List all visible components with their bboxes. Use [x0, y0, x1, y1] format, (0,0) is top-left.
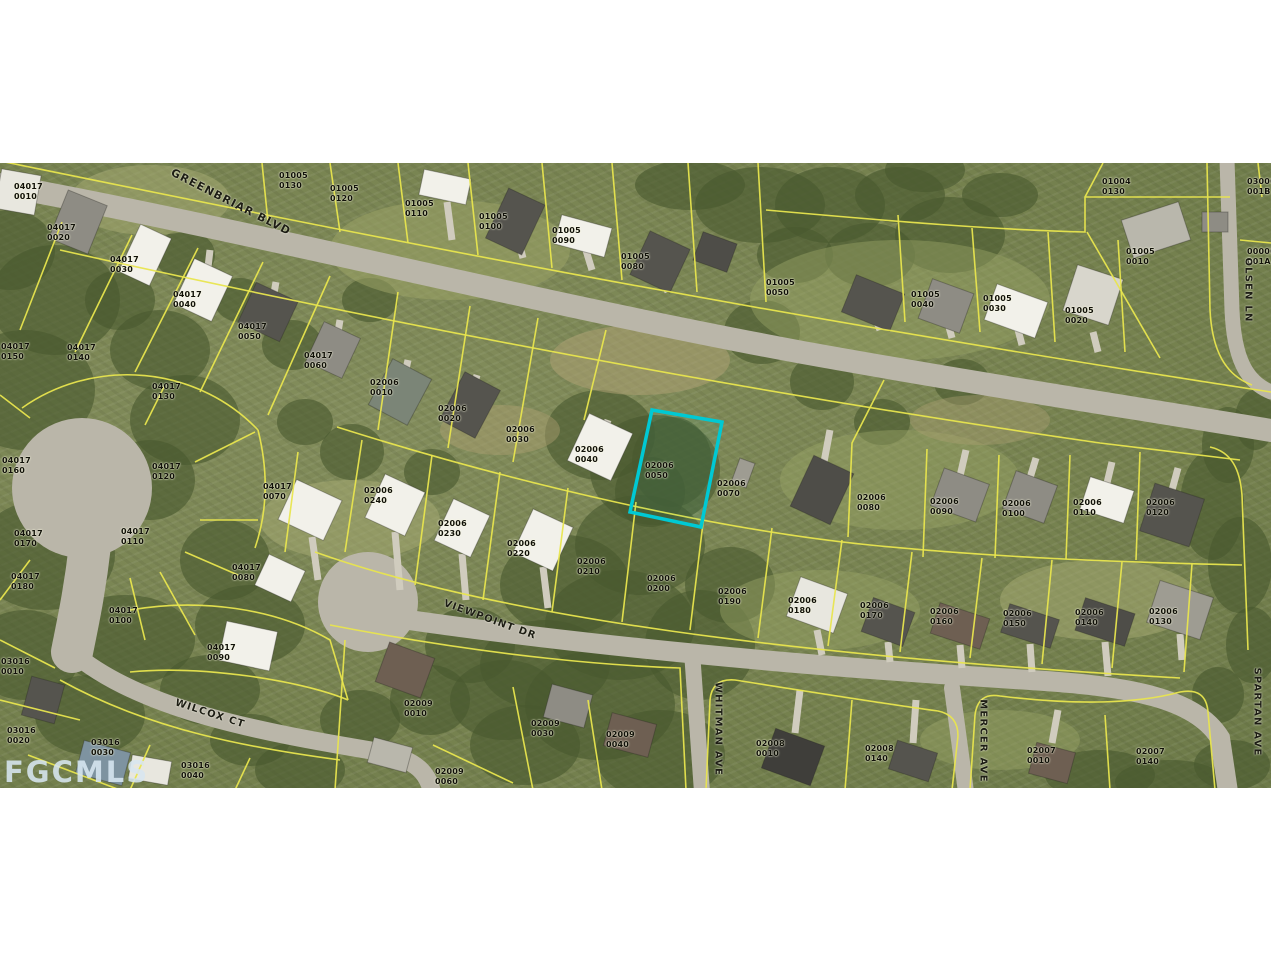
- whitman-ave-road: [692, 652, 702, 788]
- mls-map-screenshot: 04017 001004017 002004017 003004017 0040…: [0, 0, 1271, 953]
- aerial-map-image: 04017 001004017 002004017 003004017 0040…: [0, 163, 1271, 788]
- map-graphics: [0, 163, 1271, 788]
- viewpoint-culdesac: [318, 552, 418, 652]
- wilcox-neck: [72, 545, 90, 652]
- fgcmls-watermark: FGCMLS: [4, 755, 149, 788]
- vegetation: [0, 163, 1271, 788]
- olsen-ln-road: [1227, 163, 1271, 392]
